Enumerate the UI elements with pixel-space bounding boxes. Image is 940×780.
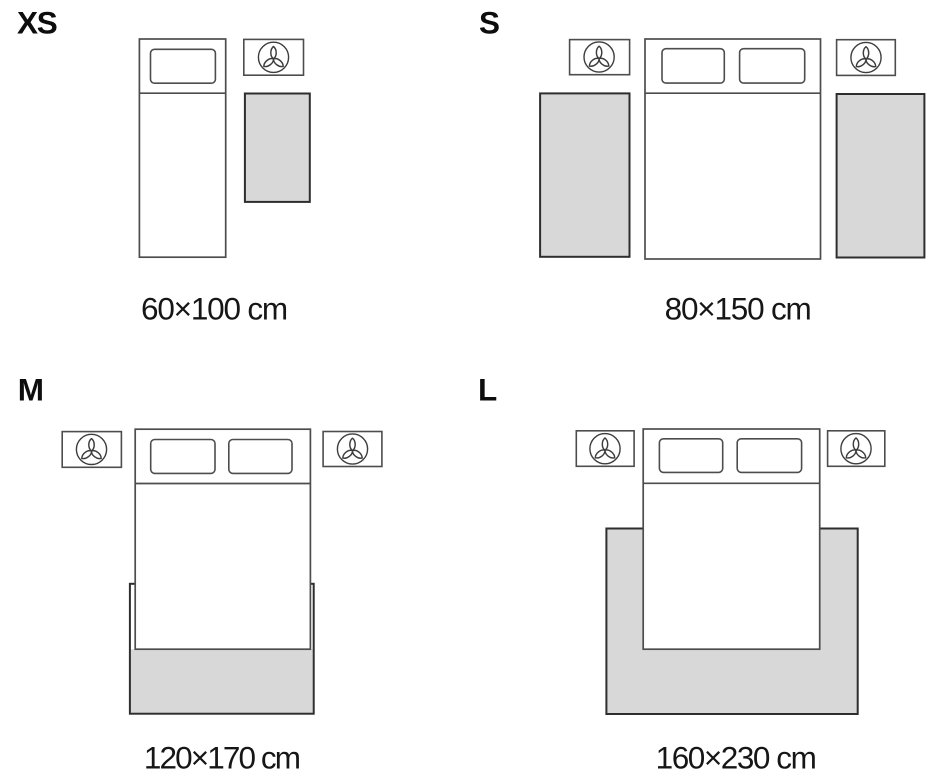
- svg-text:80×150 cm: 80×150 cm: [665, 290, 811, 326]
- svg-text:L: L: [478, 372, 497, 408]
- svg-text:60×100 cm: 60×100 cm: [141, 290, 287, 326]
- svg-text:S: S: [479, 5, 499, 41]
- svg-text:120×170 cm: 120×170 cm: [144, 740, 300, 776]
- svg-text:160×230 cm: 160×230 cm: [656, 740, 816, 776]
- svg-text:XS: XS: [17, 5, 57, 41]
- svg-text:M: M: [18, 372, 43, 408]
